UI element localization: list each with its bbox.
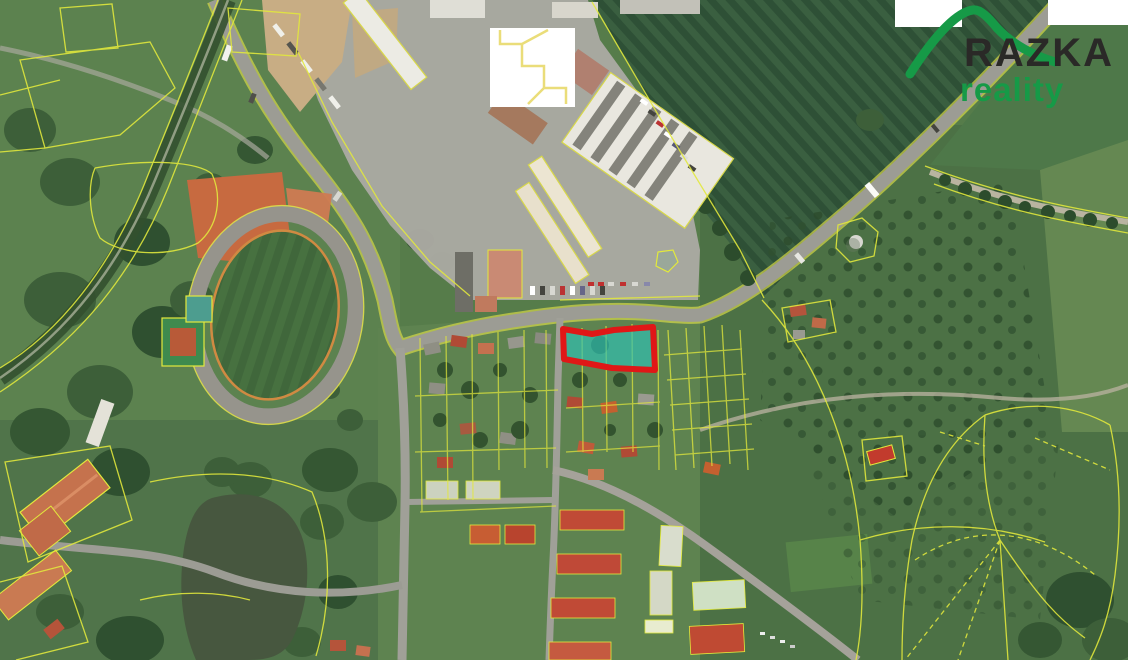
aerial-map-viewport[interactable]: RAZKA reality (0, 0, 1128, 660)
redaction-patch (1048, 0, 1128, 25)
redaction-patch (490, 28, 575, 107)
sports-hall (186, 296, 212, 322)
logo-brand-text: RAZKA (964, 31, 1114, 75)
logo-subtitle-text: reality (960, 71, 1064, 108)
highlighted-parcel[interactable] (563, 327, 655, 370)
aerial-map[interactable]: RAZKA reality (0, 0, 1128, 660)
pond (181, 494, 307, 660)
street-south (400, 348, 405, 660)
